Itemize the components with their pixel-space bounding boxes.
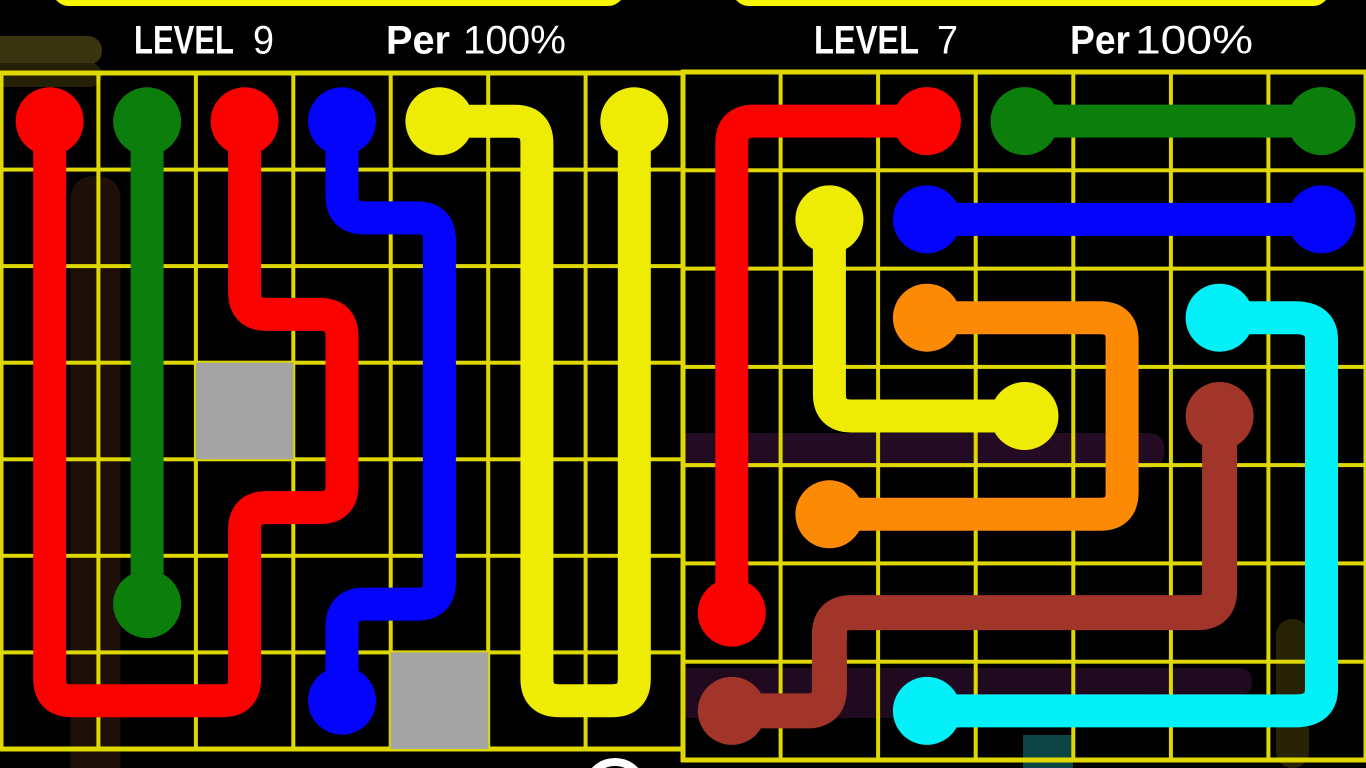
svg-text:Per: Per [1070, 19, 1130, 63]
svg-text:9: 9 [253, 19, 274, 63]
svg-text:100%: 100% [1135, 19, 1253, 63]
svg-text:100%: 100% [463, 19, 566, 63]
svg-text:Per: Per [386, 19, 450, 63]
svg-text:LEVEL: LEVEL [134, 19, 234, 63]
svg-text:7: 7 [937, 19, 958, 63]
svg-text:LEVEL: LEVEL [814, 19, 919, 63]
